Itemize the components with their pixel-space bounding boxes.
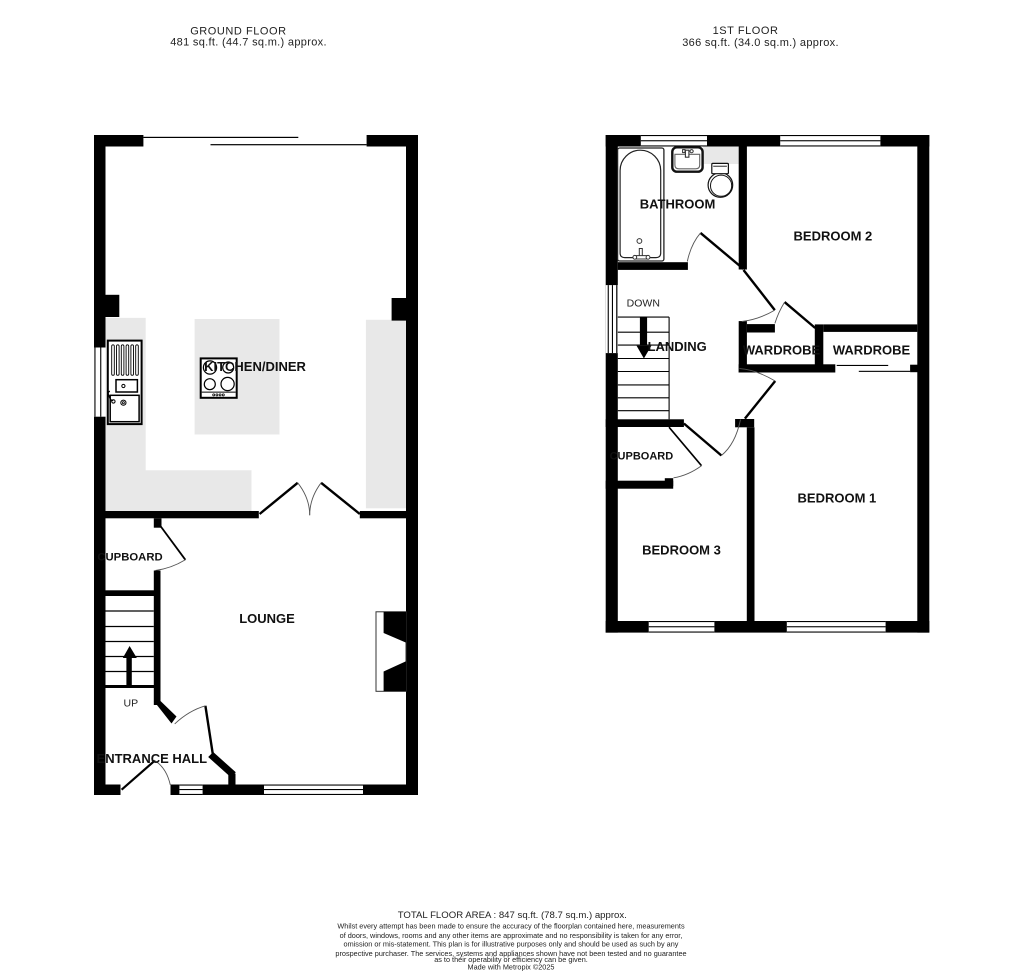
svg-text:366 sq.ft. (34.0 sq.m.) approx: 366 sq.ft. (34.0 sq.m.) approx. [682, 37, 839, 49]
svg-text:ENTRANCE HALL: ENTRANCE HALL [97, 751, 208, 766]
svg-text:Made with Metropix ©2025: Made with Metropix ©2025 [468, 963, 555, 972]
svg-text:TOTAL FLOOR AREA : 847 sq.ft.: TOTAL FLOOR AREA : 847 sq.ft. (78.7 sq.m… [398, 910, 627, 921]
svg-text:Whilst every attempt has been: Whilst every attempt has been made to en… [337, 922, 685, 931]
svg-text:DOWN: DOWN [627, 297, 660, 309]
svg-text:WARDROBE: WARDROBE [743, 343, 821, 358]
svg-text:UP: UP [124, 698, 139, 710]
svg-text:1ST FLOOR: 1ST FLOOR [713, 25, 779, 37]
svg-text:BEDROOM 2: BEDROOM 2 [794, 229, 873, 244]
svg-text:BATHROOM: BATHROOM [640, 196, 716, 211]
svg-text:481 sq.ft. (44.7 sq.m.) approx: 481 sq.ft. (44.7 sq.m.) approx. [170, 37, 327, 49]
svg-text:WARDROBE: WARDROBE [833, 343, 911, 358]
svg-text:CUPBOARD: CUPBOARD [97, 552, 162, 564]
svg-text:LANDING: LANDING [648, 339, 707, 354]
svg-text:CUPBOARD: CUPBOARD [610, 451, 674, 463]
svg-text:LOUNGE: LOUNGE [239, 611, 295, 626]
svg-text:BEDROOM 1: BEDROOM 1 [798, 491, 877, 506]
svg-text:KITCHEN/DINER: KITCHEN/DINER [204, 359, 306, 374]
svg-text:omission or mis-statement. Thi: omission or mis-statement. This plan is … [344, 940, 679, 949]
svg-text:BEDROOM 3: BEDROOM 3 [642, 542, 721, 557]
